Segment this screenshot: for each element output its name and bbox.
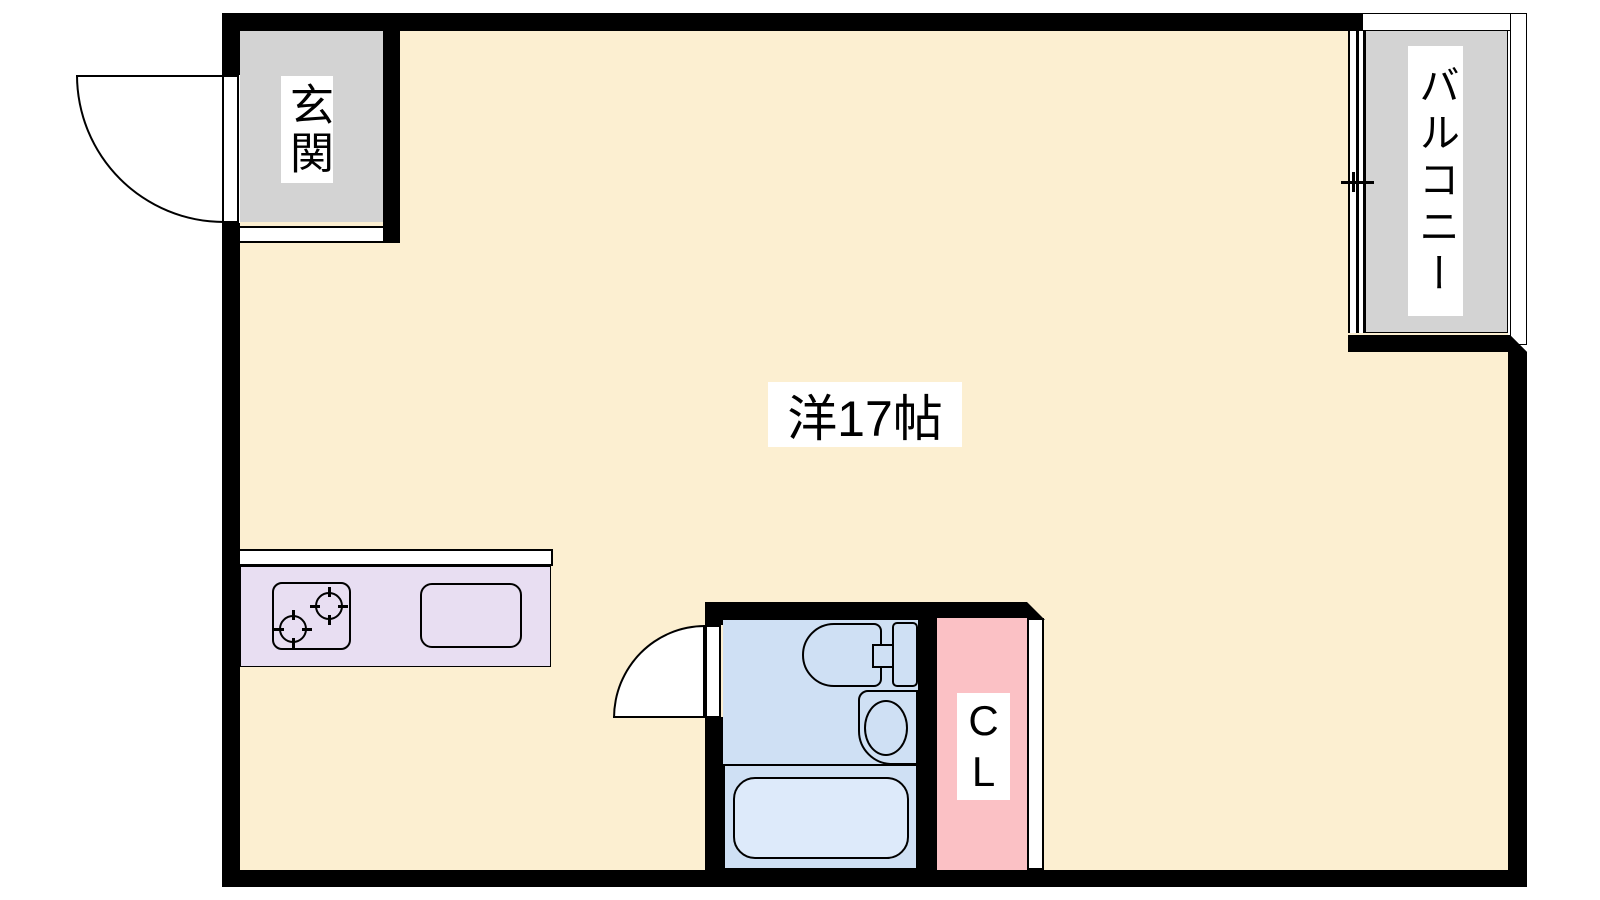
left-wall-upper <box>222 13 240 75</box>
balcony-railing-right <box>1510 13 1527 345</box>
kitchen-counter-edge <box>238 549 553 566</box>
burner-tick <box>328 587 331 597</box>
closet-label: C L <box>957 693 1010 800</box>
window-tick-vertical <box>1352 172 1355 192</box>
toilet-tank <box>892 622 918 687</box>
entrance-right-wall <box>383 13 400 243</box>
floor-plan: 玄関 バルコニー 洋17帖 C L <box>0 0 1600 900</box>
bathroom-door-leaf <box>705 625 721 718</box>
right-wall <box>1508 335 1527 870</box>
burner-tick <box>302 628 312 631</box>
kitchen-sink <box>420 583 522 648</box>
burner-tick <box>292 638 295 648</box>
bottom-wall <box>222 870 1527 887</box>
washbasin-bowl <box>864 700 908 756</box>
toilet-seat-hinge <box>872 644 894 668</box>
bathroom-left-wall-lower <box>705 717 723 870</box>
balcony-bottom-wall <box>1348 335 1527 352</box>
bathtub <box>733 777 909 859</box>
toilet-bowl <box>802 623 882 687</box>
window-tick-horizontal <box>1341 181 1374 184</box>
balcony-label: バルコニー <box>1408 46 1463 316</box>
burner-tick <box>310 605 320 608</box>
entrance-door-leaf <box>222 75 239 223</box>
burner-tick <box>328 615 331 625</box>
entrance-step <box>226 226 390 243</box>
closet-door <box>1027 618 1044 870</box>
burner-tick <box>274 628 284 631</box>
entrance-door-swing <box>76 75 224 223</box>
burner-tick <box>292 610 295 620</box>
top-wall <box>222 13 1363 31</box>
living-room-label: 洋17帖 <box>768 382 962 447</box>
bathroom-right-wall <box>918 602 937 870</box>
balcony-railing-top <box>1357 13 1527 31</box>
burner-tick <box>338 605 348 608</box>
entrance-label: 玄関 <box>281 76 333 183</box>
